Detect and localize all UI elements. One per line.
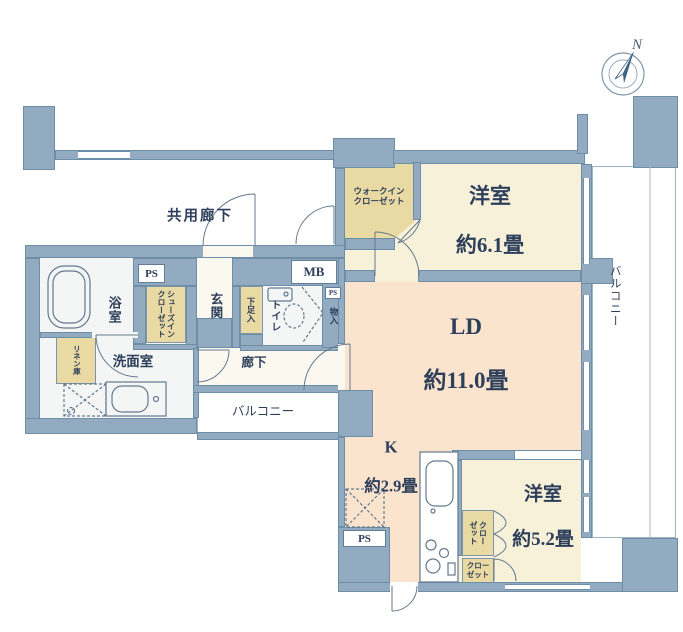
mb-label: MB bbox=[304, 264, 325, 280]
hall-bottom-wall bbox=[193, 385, 345, 393]
closet-lower-label: クロー ゼット bbox=[467, 562, 490, 580]
ld-west-wall bbox=[338, 258, 345, 344]
washroom-label: 洗面室 bbox=[113, 354, 154, 370]
west-wall bbox=[25, 258, 40, 434]
corridor-window bbox=[78, 151, 130, 159]
entrance-right-wall bbox=[232, 286, 240, 348]
bath-door-gap bbox=[92, 332, 138, 338]
balcony-bottom-left-label: バルコニー bbox=[232, 405, 294, 420]
ps-top-box: PS bbox=[138, 264, 165, 283]
balcony-right-label: バルコニー bbox=[607, 265, 621, 328]
kitchen-west-wall bbox=[338, 437, 345, 527]
ld-door-gap bbox=[338, 344, 345, 390]
pillar-bottom-right bbox=[622, 538, 678, 592]
toilet-label: トイレ bbox=[268, 300, 280, 333]
bedroom1-door-gap bbox=[375, 270, 418, 282]
washroom-bottom-wall bbox=[25, 418, 197, 434]
ld-size: 約11.0畳 bbox=[424, 368, 509, 395]
shoes-in-closet-label: シューズイン クローゼット bbox=[157, 290, 176, 338]
kitchen-label: K 約2.9畳 bbox=[364, 418, 418, 515]
mb-door-arc bbox=[296, 206, 334, 244]
ps-small-box: PS bbox=[325, 287, 341, 299]
wall-above-wic bbox=[333, 138, 395, 168]
kitchen-bedroom2-wall bbox=[452, 460, 462, 556]
shoes-entrance-wall bbox=[186, 286, 197, 348]
bedroom1-name: 洋室 bbox=[456, 184, 524, 209]
mb-box: MB bbox=[291, 260, 337, 284]
wic-bottom-wall bbox=[345, 238, 395, 250]
entrance-step-block bbox=[197, 318, 232, 348]
compass-icon bbox=[602, 50, 644, 95]
ps-top-label: PS bbox=[145, 268, 158, 280]
hallway-label: 廊下 bbox=[241, 356, 266, 371]
bedroom1-size: 約6.1畳 bbox=[456, 233, 524, 258]
bottom-window bbox=[505, 584, 590, 590]
bedroom1-bottom-wall-left bbox=[345, 270, 375, 282]
balcony-bl-bottom-wall bbox=[197, 432, 340, 440]
compass-north-label: N bbox=[632, 37, 642, 55]
bedroom2-name: 洋室 bbox=[512, 484, 574, 506]
entrance-door-gap bbox=[203, 246, 253, 257]
shoe-box-label: 下足入 bbox=[246, 297, 256, 323]
ps-bottom-label: PS bbox=[358, 533, 371, 545]
kitchen-name: K bbox=[364, 438, 418, 457]
kitchen-size: 約2.9畳 bbox=[364, 477, 418, 496]
floor-plan: PS MB PS PS bbox=[0, 0, 683, 632]
bedroom2-top-opening bbox=[515, 450, 581, 460]
common-corridor-label: 共用廊下 bbox=[167, 208, 233, 225]
bath-label: 浴室 bbox=[106, 296, 121, 324]
ps-small-label: PS bbox=[329, 289, 337, 297]
storage-small-label: 物入 bbox=[329, 308, 339, 325]
linen-label: リネン庫 bbox=[72, 345, 81, 375]
bedroom2-window-2 bbox=[583, 497, 590, 532]
walk-in-closet-label: ウォークイン クローゼット bbox=[353, 186, 404, 206]
below-shoes-wall bbox=[133, 344, 197, 350]
kitchen-door-gap bbox=[390, 582, 418, 592]
pillar-top-left bbox=[23, 106, 55, 170]
bedroom1-label: 洋室 約6.1畳 bbox=[456, 159, 524, 283]
wic-right-wall bbox=[413, 162, 421, 220]
ld-name: LD bbox=[424, 313, 509, 340]
ps-bottom-box: PS bbox=[343, 530, 386, 547]
bedroom2-size: 約5.2畳 bbox=[512, 529, 574, 551]
bedroom2-label: 洋室 約5.2畳 bbox=[512, 462, 574, 574]
bedroom2-door-gap bbox=[452, 556, 462, 582]
ld-window-2 bbox=[583, 362, 590, 430]
top-wall-stub bbox=[577, 114, 588, 154]
bedroom1-window bbox=[583, 178, 590, 264]
ld-window-1 bbox=[583, 295, 590, 350]
washroom-hall-wall bbox=[193, 348, 199, 418]
entrance-label: 玄関 bbox=[208, 293, 223, 320]
bedroom2-top-wall bbox=[452, 450, 515, 460]
hallway-floor bbox=[197, 348, 345, 385]
living-dining-label: LD 約11.0畳 bbox=[424, 286, 509, 422]
entrance-side-wall bbox=[25, 245, 345, 258]
closet-upper-label: クロー ゼット bbox=[469, 521, 488, 545]
pillar-top-right bbox=[633, 96, 678, 168]
bedroom2-window-1 bbox=[583, 460, 590, 493]
balcony-right bbox=[592, 166, 676, 538]
